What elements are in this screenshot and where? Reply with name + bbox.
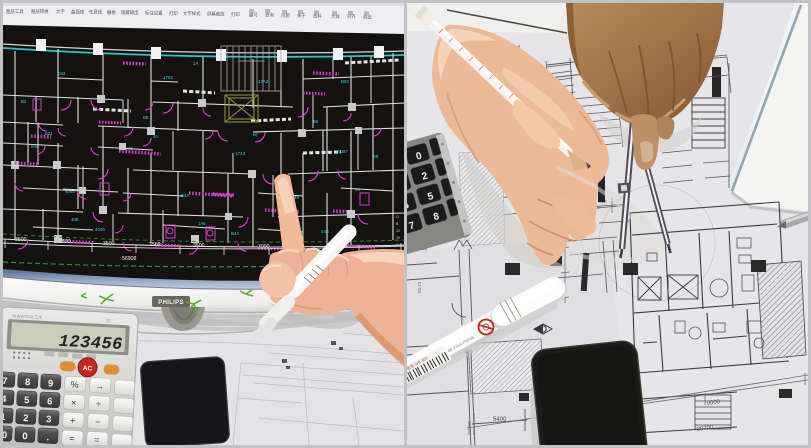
svg-text:2: 2 [23,413,29,424]
svg-text:14D87: 14D87 [335,149,348,154]
svg-text:1A: 1A [193,61,198,66]
svg-text:17A2: 17A2 [258,79,269,84]
svg-text:6: 6 [47,396,53,407]
svg-text:标注设置: 标注设置 [145,10,163,17]
svg-text:×: × [71,397,77,407]
svg-text:3500: 3500 [59,239,71,245]
svg-text:打印: 打印 [231,11,240,18]
svg-text:4046: 4046 [95,227,105,232]
svg-text:17A3: 17A3 [235,151,246,156]
svg-text:屏幕缩放: 屏幕缩放 [207,11,225,18]
svg-text:=: = [94,435,100,445]
svg-text:+: + [70,415,76,425]
svg-text:12: 12 [396,229,400,233]
svg-text:文字: 文字 [56,8,65,15]
svg-text:56908: 56908 [122,256,137,262]
svg-text:B2: B2 [21,99,27,104]
svg-text:3500: 3500 [15,237,27,243]
svg-text:9: 9 [48,378,54,389]
svg-text:.: . [46,432,49,443]
svg-text:123456: 123456 [58,333,123,355]
svg-text:00: 00 [3,430,7,442]
svg-text:1762: 1762 [163,75,173,80]
svg-text:AC: AC [83,365,93,372]
svg-text:B6: B6 [313,119,319,124]
svg-text:7: 7 [3,376,8,387]
svg-text:B5: B5 [143,115,149,120]
svg-text:1A6: 1A6 [198,221,206,226]
svg-text:3500: 3500 [103,241,115,247]
svg-text:3: 3 [46,414,52,425]
svg-text:B8: B8 [373,154,379,159]
svg-text:10: 10 [396,236,400,240]
svg-text:O: O [396,215,399,219]
svg-text:7000: 7000 [258,244,270,250]
svg-text:文字样式: 文字样式 [183,10,201,17]
svg-text:÷: ÷ [96,399,102,409]
svg-text:5400: 5400 [493,417,507,423]
svg-text:40B: 40B [71,217,79,222]
svg-text:B4A: B4A [231,231,239,236]
svg-text:隐藏输出: 隐藏输出 [121,9,139,16]
svg-text:B4: B4 [355,187,361,192]
svg-text:图层转换: 图层转换 [31,8,49,15]
svg-text:栅格: 栅格 [107,9,116,16]
svg-text:8: 8 [25,377,31,388]
svg-text:任意线: 任意线 [89,9,103,16]
svg-text:02.72: 02.72 [417,281,422,293]
svg-text:−: − [95,417,101,427]
svg-text:4A: 4A [153,134,158,139]
svg-text:3500: 3500 [149,242,161,248]
svg-text:曲面线: 曲面线 [71,9,85,16]
svg-text:3500: 3500 [193,243,205,249]
svg-text:→: → [95,381,105,391]
svg-text:04B: 04B [321,229,329,234]
svg-text:%: % [70,379,79,389]
svg-text:打印: 打印 [169,10,178,17]
svg-text:B04: B04 [341,79,349,84]
svg-text:PHILIPS: PHILIPS [158,300,183,306]
svg-text:=: = [69,433,75,443]
svg-text:043: 043 [58,71,66,76]
svg-text:B21: B21 [45,131,53,136]
svg-text:B7: B7 [253,132,259,137]
svg-text:0: 0 [22,431,28,442]
